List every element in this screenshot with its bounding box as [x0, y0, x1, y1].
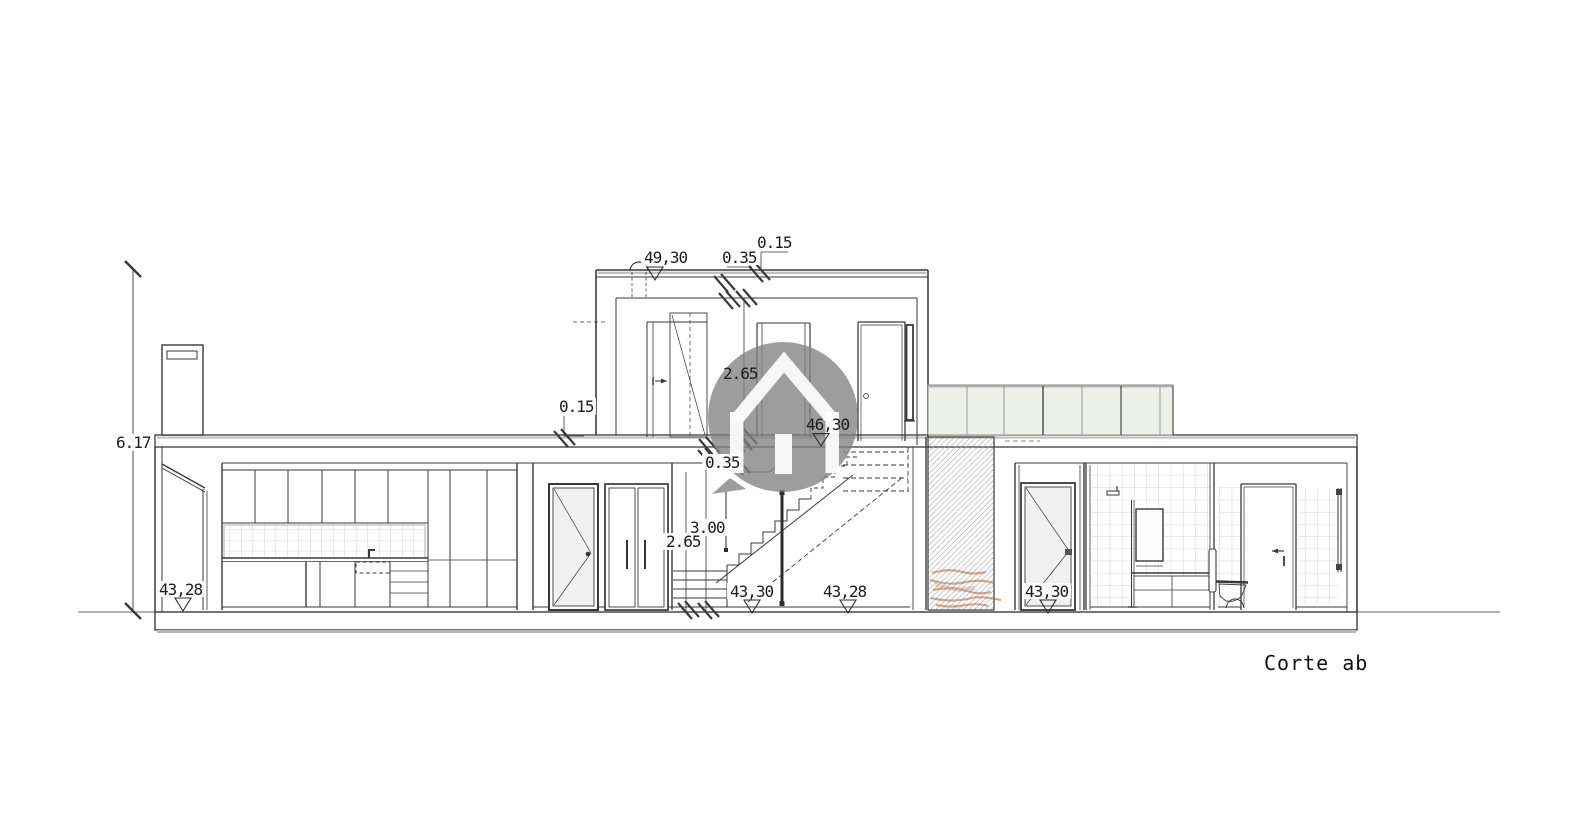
door-knob-icon [864, 394, 869, 399]
dim-label-roof-edge: 0.35 [722, 248, 757, 267]
roof-terrace-railing [928, 385, 1173, 435]
dim-label-left-slab: 0.15 [559, 397, 594, 416]
level-label-ground-right: 43,28 [823, 582, 867, 601]
annotations: 6.17 49,30 0.15 0.35 0.15 2.65 46,30 0.3… [112, 233, 1368, 675]
elevation-marker-icon [744, 600, 760, 613]
drawing-sheet: 6.17 49,30 0.15 0.35 0.15 2.65 46,30 0.3… [0, 0, 1569, 825]
swing-direction-arrow-icon [653, 377, 667, 385]
dim-label-parapet-top: 0.15 [757, 233, 792, 252]
level-label-vestibule-ground: 43,30 [1025, 582, 1069, 601]
wc-door [1241, 484, 1296, 610]
wc-room [1209, 484, 1347, 610]
kitchen-sink-hidden [356, 562, 390, 573]
kitchen-backsplash-tiles [224, 525, 425, 558]
upper-floor-door [858, 322, 905, 441]
chimney [162, 345, 203, 435]
level-label-roof: 49,30 [644, 248, 688, 267]
dim-label-stair-slab-edge: 0.35 [705, 453, 740, 472]
door-handle-icon [586, 552, 591, 557]
section-drawing: 6.17 49,30 0.15 0.35 0.15 2.65 46,30 0.3… [0, 0, 1569, 825]
hall-glass-door [549, 484, 598, 610]
elevation-marker-icon [175, 598, 191, 611]
level-label-stair-ground: 43,30 [730, 582, 774, 601]
wc-side-tiles [1298, 488, 1338, 604]
door-handle-icon [1065, 549, 1072, 555]
dim-label-upper-room-height: 2.65 [723, 364, 758, 383]
elevation-marker-icon [840, 600, 856, 613]
stair-window [907, 325, 914, 420]
level-label-upper-floor: 46,30 [806, 415, 850, 434]
door-handle-icon [1272, 549, 1284, 567]
kitchen-elevation [222, 470, 517, 607]
level-label-porch-ground: 43,28 [159, 580, 203, 599]
dim-label-total-height: 6.17 [116, 433, 151, 452]
foundation-slab [155, 612, 1357, 632]
toilet-flush-panel [1209, 549, 1216, 592]
dim-label-ground-clear-height: 2.65 [666, 532, 701, 551]
hall-double-door [605, 484, 668, 610]
bathroom-mirror [1136, 509, 1163, 561]
drawing-title: Corte ab [1264, 651, 1368, 675]
bathroom [1086, 463, 1214, 610]
